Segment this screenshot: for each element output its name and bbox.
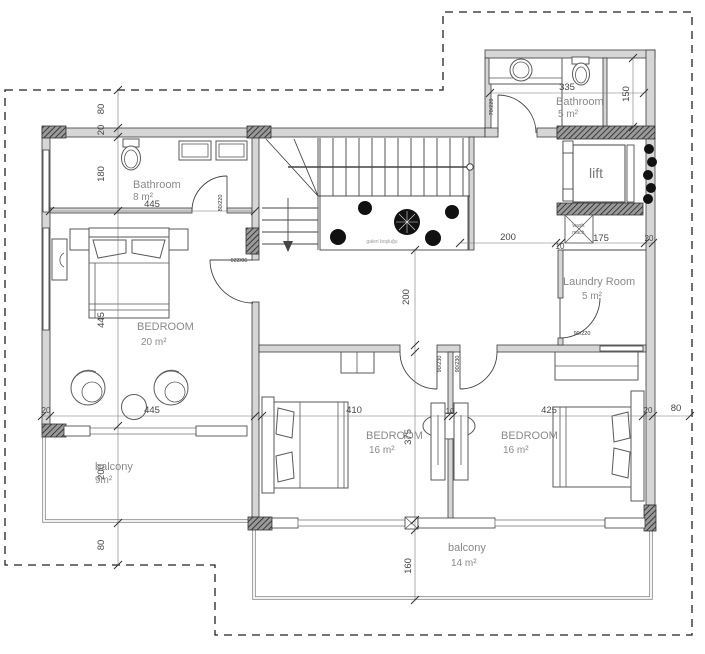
room-label-bedroom16a: BEDROOM [366, 430, 423, 442]
door-bedroom16b [460, 352, 497, 389]
window [605, 518, 645, 528]
dim-label: 20 [96, 125, 107, 136]
dim-label: 80 [671, 403, 682, 414]
pillow [276, 408, 294, 438]
wardrobes [341, 352, 638, 380]
chair [358, 201, 372, 215]
room-area-bedroom16a: 16 m² [369, 445, 395, 456]
hall-west-wall-c [252, 302, 259, 517]
balcony9-outline [44, 436, 252, 521]
washing-machine-label-2: mach. [572, 230, 586, 236]
dim-label: 160 [403, 558, 414, 574]
pillow [276, 452, 294, 482]
room-area-laundry: 5 m² [582, 291, 603, 302]
bathroom5-north-wall [485, 50, 655, 58]
window [418, 518, 495, 528]
room-label-laundry: Laundry Room [563, 276, 635, 288]
table-pattern [396, 211, 418, 233]
dim-label: 10 [446, 407, 455, 416]
hatch-block [42, 424, 66, 437]
door-size-label: 90/220 [231, 256, 248, 262]
pillow [612, 412, 630, 442]
chair [425, 230, 441, 246]
stair-down-arrow [283, 241, 293, 252]
hall-west-wall-a [252, 137, 259, 228]
bedrooms-north-wall-b [437, 345, 460, 352]
sliding-door-rail [88, 428, 198, 434]
dim-label: 410 [346, 405, 362, 416]
window [43, 150, 49, 212]
balcony9-outline-core [44, 436, 252, 521]
dim-label: 180 [96, 166, 107, 182]
dim-label: 425 [541, 405, 557, 416]
room-label-balcony14: balcony [448, 542, 486, 554]
door-size-label: 90/220 [574, 331, 591, 337]
pillow [612, 448, 630, 478]
hall-west-wall-b [252, 254, 259, 260]
dim-label: 200 [401, 289, 412, 305]
dim-label: 20 [645, 234, 654, 243]
room-label-bathroom5: Bathroom [556, 96, 604, 108]
shaft-dot [646, 183, 656, 193]
laundry-west-wall-a [558, 250, 563, 298]
chair [445, 205, 459, 219]
bed-right [553, 391, 644, 501]
room-label-bedroom20: BEDROOM [137, 321, 194, 333]
door-bedroom16a [400, 352, 437, 389]
bed-center [262, 397, 348, 493]
dim-label: 445 [96, 312, 107, 328]
bathroom5-south-wall-a [485, 128, 498, 137]
bathroom5-fixtures [489, 57, 590, 85]
headboard [631, 391, 644, 501]
headboard [262, 397, 274, 493]
dim-label: 445 [144, 405, 160, 416]
bedrooms-north-wall-a [259, 345, 400, 352]
railing-post [467, 164, 473, 170]
sliding-door-rail [495, 520, 605, 526]
room-area-balcony9: 9m² [95, 475, 113, 486]
dim-label: 200 [500, 232, 516, 243]
door-size-label: 90/230 [437, 356, 443, 373]
hatch-block [557, 126, 655, 139]
lift-door-slot [627, 145, 634, 202]
room-area-bedroom16b: 16 m² [503, 445, 529, 456]
east-exterior-wall [646, 50, 655, 505]
dim-label: 20 [42, 406, 51, 415]
lift-shaft [563, 141, 657, 204]
dim-label: 335 [559, 82, 575, 93]
hatch-block [247, 126, 271, 138]
room-area-balcony14: 14 m² [451, 558, 477, 569]
door-bedroom20 [210, 260, 253, 303]
door-size-label: 90/230 [455, 356, 461, 373]
bathroom8-south-wall-a [50, 208, 192, 213]
laundry-west-wall-b [558, 338, 563, 345]
door-bathroom5 [498, 95, 536, 133]
armchair [71, 371, 105, 405]
hatch-block [644, 505, 656, 531]
armchair [154, 371, 188, 405]
headboard [89, 228, 169, 237]
bed-master [70, 228, 188, 318]
window [43, 228, 49, 330]
lift-jamb [563, 189, 573, 201]
wall-niche [600, 346, 643, 351]
lift-jamb [563, 141, 573, 153]
dresser [52, 239, 67, 280]
room-label-lift: lift [589, 165, 603, 181]
room-area-bathroom5: 5 m² [558, 109, 579, 120]
armchairs [71, 370, 188, 419]
hatch-block [557, 203, 643, 215]
washing-machine [565, 215, 593, 243]
shaft-dot [643, 194, 653, 204]
shaft-dot [644, 144, 654, 154]
hatch-block [248, 517, 272, 530]
room-area-bathroom8: 8 m² [133, 192, 154, 203]
dim-label: 20 [644, 406, 653, 415]
floor-plan: 80 20 180 445 445 20 445 200 80 335 150 … [0, 0, 705, 654]
chair [330, 229, 346, 245]
bathroom5-south-wall-b [537, 128, 557, 137]
nightstand [70, 229, 89, 250]
window [64, 426, 90, 436]
washing-machine-label-1: wash. [572, 223, 585, 229]
door-size-label: 70/220 [489, 99, 495, 116]
shaft-dot [647, 157, 657, 167]
toilet-bowl [573, 63, 590, 85]
hatch-block [42, 126, 66, 138]
window [272, 518, 298, 528]
room-label-bathroom8: Bathroom [133, 179, 181, 191]
room-label-bedroom16b: BEDROOM [501, 430, 558, 442]
corridor-west-wall [469, 137, 474, 250]
room-label-balcony9: balcony [95, 461, 133, 473]
nightstand [169, 229, 188, 250]
bathroom8-fixtures [122, 139, 248, 170]
dim-label: 80 [96, 104, 107, 115]
shaft-dot [643, 170, 653, 180]
dim-label: 175 [593, 233, 609, 244]
wardrobe [341, 352, 374, 373]
hatch-block [246, 228, 259, 254]
bathroom8-south-wall-b [227, 208, 252, 213]
window [196, 426, 247, 436]
dim-label: 150 [621, 86, 632, 102]
dim-label: 80 [96, 540, 107, 551]
gallery-label: galeri boşluğu [366, 239, 397, 245]
door-size-label: 80/220 [218, 195, 224, 212]
room-area-bedroom20: 20 m² [141, 337, 167, 348]
dim-label: 10 [556, 242, 565, 251]
sliding-door-rail [298, 520, 407, 526]
